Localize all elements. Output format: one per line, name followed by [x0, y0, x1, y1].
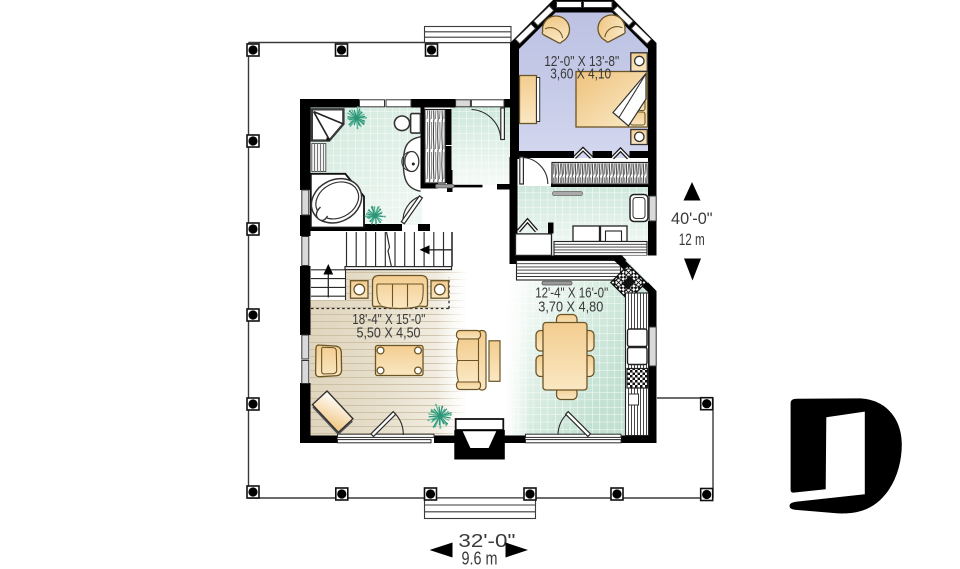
svg-text:3,70 X 4,80: 3,70 X 4,80: [538, 299, 603, 316]
svg-text:9.6 m: 9.6 m: [462, 549, 498, 569]
svg-text:5,50 X 4,50: 5,50 X 4,50: [357, 325, 421, 342]
svg-text:40'-0": 40'-0": [671, 209, 713, 228]
svg-text:3,60 X 4,10: 3,60 X 4,10: [550, 66, 611, 83]
svg-text:12 m: 12 m: [679, 230, 705, 249]
